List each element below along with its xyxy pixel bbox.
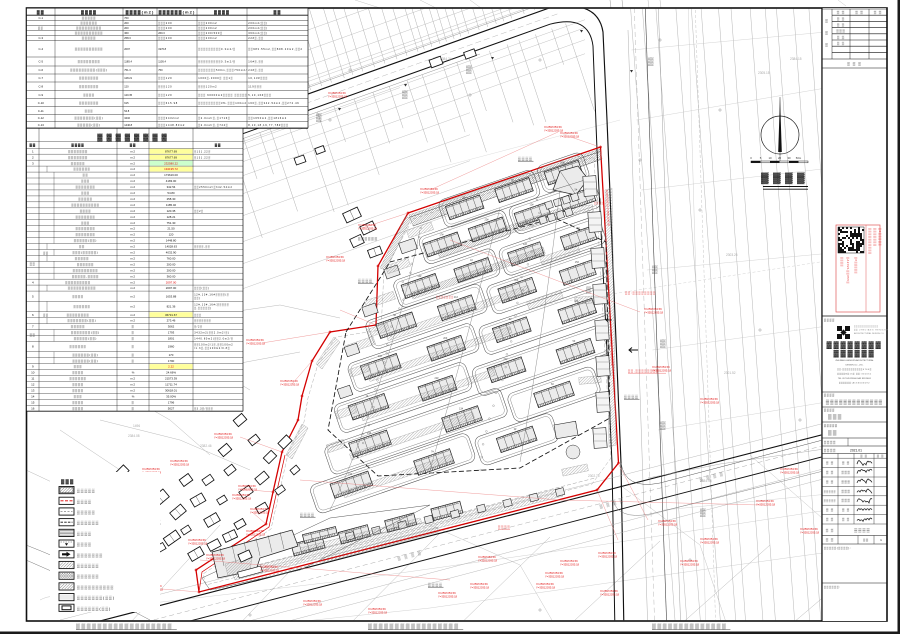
svg-text:%: % [132, 395, 135, 399]
svg-text:1960: 1960 [168, 345, 175, 349]
svg-text:▒ ▒ ▒: ▒ ▒ ▒ [847, 62, 862, 66]
svg-text:▒▒▒▒▒(▒▒): ▒▒▒▒▒(▒▒) [74, 239, 97, 243]
svg-text:▒▒▒: ▒▒▒ [81, 191, 90, 195]
svg-text:▒▒▒▒▒▒▒▒▒▒▒▒▒▒: ▒▒▒▒▒▒▒▒▒▒▒▒▒▒ [652, 623, 727, 630]
svg-text:1: 1 [880, 538, 882, 542]
svg-text:200m2(▒▒): 200m2(▒▒) [248, 21, 268, 25]
svg-text:▒▒▒▒: ▒▒▒▒ [72, 383, 83, 387]
svg-text:m2: m2 [130, 383, 136, 387]
svg-text:Y=35512035.18: Y=35512035.18 [545, 574, 565, 578]
svg-text:Y=35512035.18: Y=35512035.18 [756, 502, 776, 506]
svg-text:▒▒▒200m2: ▒▒▒200m2 [198, 36, 217, 40]
svg-text:2097.00: 2097.00 [166, 280, 177, 284]
svg-text:26#: 26# [514, 279, 519, 282]
svg-text:760.00: 760.00 [167, 257, 176, 261]
svg-text:273.46: 273.46 [167, 319, 176, 323]
svg-text:▒▒▒▒▒,▒▒▒▒: ▒▒▒▒▒,▒▒▒▒ [72, 274, 99, 278]
svg-text:16#▒,▒▒: 16#▒,▒▒ [248, 60, 263, 64]
svg-text:1976.8: 1976.8 [158, 47, 166, 51]
svg-text:▒ ▒: ▒ ▒ [837, 35, 845, 39]
svg-text:m2: m2 [130, 377, 136, 381]
svg-text:▒: ▒ [402, 90, 410, 99]
svg-text:m2: m2 [130, 185, 136, 189]
svg-text:▒▒▒200: ▒▒▒200 [158, 36, 172, 40]
svg-text:21.50: 21.50 [167, 227, 175, 231]
svg-text:▒▒▒120: ▒▒▒120 [158, 85, 172, 89]
svg-text:▒: ▒ [648, 57, 656, 66]
svg-text:1496: 1496 [133, 424, 140, 428]
svg-text:▒▒▒: ▒▒▒ [81, 221, 90, 225]
svg-text:▒▒▒▒▒▒▒▒▒0.3m2/▒: ▒▒▒▒▒▒▒▒▒0.3m2/▒ [198, 60, 236, 64]
svg-text:▒▒2550m2/▒342.54m2: ▒▒2550m2/▒342.54m2 [194, 185, 232, 189]
svg-text:360: 360 [124, 31, 129, 35]
svg-text:▒: ▒ [132, 353, 135, 357]
svg-text:▒▒▒200m2: ▒▒▒200m2 [198, 21, 217, 25]
svg-text:▒ ▒: ▒ ▒ [842, 508, 850, 512]
svg-text:751.3: 751.3 [124, 68, 131, 72]
svg-text:▒▒▒▒: ▒▒▒▒ [77, 542, 92, 547]
svg-text:▒▒1650m2,▒▒1816m2: ▒▒1650m2,▒▒1816m2 [248, 116, 287, 120]
svg-text:▒▒▒(▒▒▒▒▒): ▒▒▒(▒▒▒▒▒) [72, 251, 98, 255]
svg-text:50m: 50m [796, 156, 802, 160]
svg-text:Y=35512035.18: Y=35512035.18 [700, 540, 720, 544]
svg-text:▒▒▒: ▒▒▒ [841, 499, 850, 503]
svg-text:87677.69: 87677.69 [165, 155, 177, 159]
svg-text:160▒,▒▒342.54m2,▒▒272.46: 160▒,▒▒342.54m2,▒▒272.46 [248, 101, 299, 105]
svg-text:▒3.3▒/▒▒▒: ▒3.3▒/▒▒▒ [194, 406, 213, 410]
svg-text:13: 13 [31, 389, 35, 393]
svg-text:▒▒▒▒▒▒▒▒▒▒: ▒▒▒▒▒▒▒▒▒▒ [77, 584, 114, 589]
svg-text:▒ ▒: ▒ ▒ [826, 508, 834, 512]
svg-text:%: % [132, 371, 135, 375]
svg-text:C-10: C-10 [38, 101, 45, 105]
svg-text:▒ ▒: ▒ ▒ [826, 518, 834, 522]
svg-text:▒▒▒120m2: ▒▒▒120m2 [198, 85, 217, 89]
svg-text:▒▒▒200: ▒▒▒200 [158, 21, 172, 25]
svg-text:C-12: C-12 [38, 116, 45, 120]
svg-text:▒▒▒▒: ▒▒▒▒ [300, 512, 315, 517]
svg-text:Y=35512035.18: Y=35512035.18 [780, 470, 800, 474]
svg-text:▒▒▒▒▒▒▒: ▒▒▒▒▒▒▒ [436, 295, 454, 299]
svg-text:200m2(▒▒): 200m2(▒▒) [248, 26, 268, 30]
svg-text:m2: m2 [130, 294, 136, 298]
svg-text:▒▒▒: ▒▒▒ [841, 471, 850, 475]
svg-text:Y=35512035.18: Y=35512035.18 [188, 541, 208, 545]
svg-text:▒▒▒▒▒▒▒▒▒3%.▒▒▒100m2: ▒▒▒▒▒▒▒▒▒3%.▒▒▒100m2 [198, 101, 246, 105]
svg-text:170: 170 [169, 353, 174, 357]
svg-text:▒▒▒▒▒▒▒: ▒▒▒▒▒▒▒ [76, 233, 96, 237]
svg-text:m2: m2 [130, 257, 136, 261]
svg-text:▒▒▒▒: ▒▒▒▒ [824, 441, 836, 445]
svg-text:▒▒▒: ▒▒▒ [194, 313, 201, 317]
svg-text:2382.46: 2382.46 [200, 444, 212, 448]
svg-text:▒▒▒▒▒▒▒▒▒▒▒▒▒▒▒▒▒: ▒▒▒▒▒▒▒▒▒▒▒▒▒▒▒▒▒ [368, 623, 460, 630]
svg-text:m2: m2 [130, 203, 136, 207]
svg-text:▒▒▒▒▒▒(▒▒): ▒▒▒▒▒▒(▒▒) [77, 606, 111, 611]
svg-text:▒▒▒▒▒▒▒▒▒▒▒▒▒▒▒▒▒▒: ▒▒▒▒▒▒▒▒▒▒▒▒▒▒▒▒▒▒ [76, 623, 173, 630]
svg-text:120.35: 120.35 [167, 209, 176, 213]
svg-text:▒▒▒: ▒▒▒ [74, 395, 83, 399]
svg-text:▒▒▒: ▒▒▒ [836, 29, 845, 33]
svg-text:▒: ▒ [132, 337, 135, 341]
svg-text:▒: ▒ [652, 265, 660, 274]
svg-text:Y=35512035.18: Y=35512035.18 [206, 556, 226, 560]
svg-text:2384.15: 2384.15 [790, 57, 802, 61]
svg-text:▒▒▒▒▒: ▒▒▒▒▒ [824, 499, 836, 503]
svg-text:▒▒▒▒▒▒▒500m,▒▒▒750m2/: ▒▒▒▒▒▒▒500m,▒▒▒750m2/ [198, 68, 247, 72]
svg-text:▒▒▒▒▒▒: ▒▒▒▒▒▒ [77, 574, 99, 579]
svg-text:▒▒▒▒: ▒▒▒▒ [824, 449, 836, 453]
svg-text:▒▒▒▒▒▒: ▒▒▒▒▒▒ [77, 262, 94, 266]
svg-text:C-9: C-9 [39, 93, 44, 97]
svg-text:▒▒:▒▒▒▒▒▒▒▒▒▒4760▒: ▒▒:▒▒▒▒▒▒▒▒▒▒4760▒ [837, 368, 872, 371]
svg-text:▒▒▒▒▒▒▒▒▒▒▒▒: ▒▒▒▒▒▒▒▒▒▒▒▒ [854, 325, 879, 328]
svg-text:▒ ▒: ▒ ▒ [826, 461, 834, 465]
svg-text:▒: ▒ [132, 406, 135, 410]
svg-text:54.80: 54.80 [167, 191, 175, 195]
svg-text:m2: m2 [130, 262, 136, 266]
svg-text:1448.80: 1448.80 [166, 239, 177, 243]
svg-text:m2: m2 [130, 215, 136, 219]
svg-text:8,10,18,19,77,78#▒▒▒: 8,10,18,19,77,78#▒▒▒ [248, 123, 288, 127]
svg-text:▒▒▒120: ▒▒▒120 [158, 76, 172, 80]
svg-text:▒▒: ▒▒ [83, 173, 89, 177]
svg-text:12: 12 [31, 383, 35, 387]
svg-text:ARCHITECTURAL DESIGN CO.: ARCHITECTURAL DESIGN CO. [854, 332, 885, 335]
svg-text:120.35: 120.35 [124, 93, 132, 97]
svg-text:22#: 22# [560, 162, 565, 165]
svg-text:▒▒▒▒: ▒▒▒▒ [72, 389, 83, 393]
svg-text:194195.72: 194195.72 [164, 167, 178, 171]
svg-text:Y=35512035.18: Y=35512035.18 [246, 532, 266, 536]
svg-text:1185.40: 1185.40 [166, 203, 177, 207]
svg-text:▒▒▒▒▒▒▒: ▒▒▒▒▒▒▒ [873, 228, 877, 247]
svg-text:▒▒▒▒,▒▒: ▒▒▒▒,▒▒ [194, 245, 210, 249]
svg-text:▒▒▒▒▒▒▒▒▒: ▒▒▒▒▒▒▒▒▒ [65, 280, 91, 284]
svg-text:▒▒▒▒▒▒▒▒▒0.3m2/▒: ▒▒▒▒▒▒▒▒▒0.3m2/▒ [198, 47, 236, 51]
svg-text:3062: 3062 [168, 325, 175, 329]
svg-text:128.21: 128.21 [124, 76, 132, 80]
svg-text:3432m2(▒▒2.0m2/▒): 3432m2(▒▒2.0m2/▒) [194, 331, 229, 335]
svg-text:120: 120 [124, 85, 129, 89]
svg-text:▒▒▒▒▒: ▒▒▒▒▒ [71, 325, 85, 329]
svg-text:10: 10 [31, 371, 35, 375]
svg-text:C-5: C-5 [39, 60, 44, 64]
svg-text:15#: 15# [367, 432, 372, 435]
svg-text:12#: 12# [523, 243, 528, 246]
svg-text:▒▒▒▒▒▒:A133005092: ▒▒▒▒▒▒:A133005092 [839, 382, 870, 385]
svg-text:5,10,16#▒▒▒: 5,10,16#▒▒▒ [248, 93, 271, 97]
svg-text:Y=35512035.18: Y=35512035.18 [700, 400, 720, 404]
svg-text:▒▒▒▒▒▒▒: ▒▒▒▒▒▒▒ [77, 552, 103, 557]
svg-text:751.30: 751.30 [167, 221, 176, 225]
svg-text:▒▒▒▒▒▒▒: ▒▒▒▒▒▒▒ [79, 76, 99, 80]
svg-text:Y=35512035.18: Y=35512035.18 [478, 558, 498, 562]
svg-text:▒▒▒▒▒▒: ▒▒▒▒▒▒ [70, 377, 87, 381]
svg-text:▒▒▒▒▒: ▒▒▒▒▒ [82, 16, 96, 20]
svg-text:5027: 5027 [168, 406, 175, 410]
svg-text:Y=35512035.18: Y=35512035.18 [420, 190, 440, 194]
svg-text:/1.3▒,▒▒100m2/0.8▒: /1.3▒,▒▒100m2/0.8▒ [194, 346, 230, 350]
svg-text:260.3: 260.3 [158, 31, 165, 35]
svg-text:2.22: 2.22 [168, 365, 174, 369]
svg-text:15: 15 [31, 400, 35, 404]
svg-text:C-7: C-7 [39, 76, 44, 80]
svg-text:▒ ▒: ▒ ▒ [874, 11, 882, 15]
svg-text:200.00: 200.00 [167, 262, 176, 266]
svg-text:▒▒▒▒▒▒▒: ▒▒▒▒▒▒▒ [76, 215, 96, 219]
svg-text:▒131.22▒: ▒131.22▒ [194, 155, 211, 159]
svg-text:258.30: 258.30 [167, 197, 176, 201]
svg-text:▒▒2▒: ▒▒2▒ [194, 209, 203, 213]
svg-text:Y=35512035.18: Y=35512035.18 [470, 585, 490, 589]
svg-text:m2: m2 [130, 191, 136, 195]
svg-text:▒▒▒200/500▒: ▒▒▒200/500▒ [198, 31, 222, 35]
svg-text:▒▒▒▒▒▒▒▒▒▒: ▒▒▒▒▒▒▒▒▒▒ [75, 31, 103, 35]
svg-text:20: 20 [778, 156, 782, 160]
svg-text:▒▒: ▒▒ [38, 26, 43, 30]
svg-text:▒: ▒ [825, 43, 829, 47]
svg-text:▒▒▒▒: ▒▒▒▒ [77, 531, 92, 536]
svg-text:▒▒ ZHEJIANG HENGXIN: ▒▒ ZHEJIANG HENGXIN [854, 329, 889, 332]
svg-text:119▒▒▒: 119▒▒▒ [248, 85, 262, 89]
svg-text:17#: 17# [440, 234, 445, 237]
svg-text:▒▒: ▒▒ [863, 538, 869, 542]
svg-text:▒▒▒▒▒▒▒▒: ▒▒▒▒▒▒▒▒ [67, 313, 90, 317]
svg-text:20#: 20# [504, 358, 509, 361]
svg-text:m2: m2 [130, 274, 136, 278]
svg-text:▒▒▒▒▒: ▒▒▒▒▒ [824, 489, 836, 493]
svg-text:1653.88: 1653.88 [166, 294, 177, 298]
svg-text:▒▒: ▒▒ [30, 262, 36, 266]
svg-text:▓▓: ▓▓ [130, 143, 137, 147]
svg-text:▒▒▒▒▒▒▒▒▒▒: ▒▒▒▒▒▒▒▒▒▒ [868, 228, 872, 255]
svg-text:▓▓▓▓▓▓▓▓: ▓▓▓▓▓▓▓▓ [827, 341, 883, 349]
svg-text:Y=35512035.18: Y=35512035.18 [238, 487, 258, 491]
svg-text:▒▒▒▒▒▒: ▒▒▒▒▒▒ [77, 563, 99, 568]
svg-text:▒▒▒▒▒(▒▒): ▒▒▒▒▒(▒▒) [74, 337, 97, 341]
svg-text:24#▒,▒▒: 24#▒,▒▒ [248, 68, 263, 72]
svg-text:▒ ▒: ▒ ▒ [837, 23, 845, 27]
svg-text:11711.74: 11711.74 [165, 383, 177, 387]
svg-text:▒▒▒▒▒▒: ▒▒▒▒▒▒ [77, 520, 99, 525]
svg-text:35.00%: 35.00% [166, 395, 176, 399]
svg-text:▒,▒▒▒▒▒): ▒,▒▒▒▒▒) [194, 306, 212, 310]
svg-text:m2: m2 [130, 251, 136, 255]
svg-text:▒▒▒3432m2: ▒▒▒3432m2 [158, 116, 179, 120]
svg-text:15#: 15# [575, 261, 580, 264]
svg-text:C-13: C-13 [38, 123, 45, 127]
svg-text:▒ ▒: ▒ ▒ [877, 454, 884, 458]
svg-text:▒▒▒▒▒▒▒▒▒▒: ▒▒▒▒▒▒▒▒▒▒ [68, 286, 96, 290]
svg-text:▒: ▒ [825, 31, 829, 35]
svg-text:▒▒▒: ▒▒▒ [81, 179, 90, 183]
svg-text:Y=35512035.18: Y=35512035.18 [680, 562, 700, 566]
svg-text:173616.00: 173616.00 [164, 173, 178, 177]
svg-text:▒▒▒▒▒▒▒: ▒▒▒▒▒▒▒ [76, 185, 96, 189]
svg-text:▒▒: ▒▒ [43, 313, 48, 317]
svg-text:▒ ▒: ▒ ▒ [855, 11, 863, 15]
svg-text:▒ ▒: ▒ ▒ [842, 461, 850, 465]
svg-text:12#,13#,16#(▒▒▒▒▒: 12#,13#,16#(▒▒▒▒▒ [194, 303, 229, 307]
svg-text:▒▒▒▒: ▒▒▒▒ [594, 201, 604, 205]
svg-text:200.00: 200.00 [167, 268, 176, 272]
svg-text:▒▒: ▒▒ [828, 430, 838, 437]
svg-text:▒▒▒▒: ▒▒▒▒ [854, 528, 870, 533]
svg-text:▒: ▒ [132, 400, 135, 404]
svg-text:▒2.0m2/▒,▒1716▒: ▒2.0m2/▒,▒1716▒ [198, 116, 230, 120]
svg-text:22#: 22# [485, 219, 490, 222]
svg-text:▒▒▒▒▒▒: ▒▒▒▒▒▒ [81, 21, 98, 25]
svg-text:1801: 1801 [168, 337, 175, 341]
svg-text:▒▒▒▒: ▒▒▒▒ [518, 156, 533, 161]
svg-text:▒▒▒▒▒▒(▒▒): ▒▒▒▒▒▒(▒▒) [72, 353, 98, 357]
svg-text:16#: 16# [462, 196, 467, 199]
svg-text:200: 200 [124, 21, 129, 25]
svg-text:▒▒▒▒: ▒▒▒▒ [77, 499, 92, 504]
svg-text:Y=35512035.18: Y=35512035.18 [560, 562, 580, 566]
svg-text:750: 750 [158, 68, 163, 72]
svg-text:1440.80m2(▒▒2.0m2/▒: 1440.80m2(▒▒2.0m2/▒ [194, 337, 233, 341]
svg-text:16#: 16# [576, 227, 581, 230]
svg-text:▒▒▒▒▒▒:: ▒▒▒▒▒▒: [824, 585, 841, 589]
svg-text:▒ ▒: ▒ ▒ [826, 529, 834, 533]
svg-text:▒▒▒▒▒(▒▒▒▒):: ▒▒▒▒▒(▒▒▒▒): [824, 546, 851, 550]
svg-text:▒▒▒▒▒▒▒▒▒(▒▒▒): ▒▒▒▒▒▒▒▒▒(▒▒▒) [70, 68, 107, 72]
svg-text:▒ ▒: ▒ ▒ [837, 17, 845, 21]
svg-text:▒▒▒▒▒: ▒▒▒▒▒ [77, 510, 96, 515]
svg-text:Y=35512035.18: Y=35512035.18 [644, 310, 664, 314]
svg-text:Y=35512035.18: Y=35512035.18 [800, 530, 820, 534]
svg-text:m2: m2 [130, 173, 136, 177]
svg-text:▒▒▒▒▒▒▒: ▒▒▒▒▒▒▒ [68, 149, 88, 153]
svg-text:▒▒▒▒▒▒▒▒: ▒▒▒▒▒▒▒▒ [78, 60, 101, 64]
svg-text:▒▒▒▒▒▒▒: ▒▒▒▒▒▒▒ [194, 319, 211, 323]
svg-text:▓▓▓▓: ▓▓▓▓ [71, 143, 84, 147]
svg-text:▒▒▒▒: ▒▒▒▒ [824, 318, 835, 322]
svg-text:m2: m2 [130, 227, 136, 231]
svg-text:C-6: C-6 [39, 68, 44, 72]
svg-text:Y=35512035.18: Y=35512035.18 [598, 554, 618, 558]
svg-text:▒▒▒▒: ▒▒▒▒ [824, 408, 835, 412]
svg-text:1000▒-3000▒ ▒▒1▒: 1000▒-3000▒ ▒▒1▒ [198, 76, 233, 80]
svg-text:▒: ▒ [132, 331, 135, 335]
svg-text:Y=35512035.18: Y=35512035.18 [358, 226, 378, 230]
svg-text:2097: 2097 [124, 47, 130, 51]
svg-text:▒▒▒▒▒▒▒▒▒▒: ▒▒▒▒▒▒▒▒▒▒ [71, 203, 99, 207]
svg-text:m2: m2 [130, 239, 136, 243]
svg-text:▒▒▒: ▒▒▒ [841, 489, 850, 493]
svg-text:1790: 1790 [168, 359, 175, 363]
svg-text:21#: 21# [454, 296, 459, 299]
svg-text:m2: m2 [130, 179, 136, 183]
svg-text:DESIGN CO., LTD.: DESIGN CO., LTD. [846, 365, 864, 367]
svg-text:▒▒▒▒▒▒: ▒▒▒▒▒▒ [70, 345, 87, 349]
svg-text:232580.22: 232580.22 [164, 161, 178, 165]
svg-text:2384.08: 2384.08 [128, 434, 140, 438]
svg-text:C-8: C-8 [39, 85, 44, 89]
svg-text:11: 11 [31, 377, 34, 381]
svg-text:ZHEJIANG HENGXIN ARCHITECTURAL: ZHEJIANG HENGXIN ARCHITECTURAL [835, 359, 874, 362]
svg-text:▒▒▒▒: ▒▒▒▒ [72, 406, 83, 410]
svg-text:1440.8: 1440.8 [124, 123, 132, 127]
svg-text:615: 615 [124, 101, 129, 105]
svg-text:m2: m2 [130, 280, 136, 284]
svg-text:13#: 13# [417, 275, 422, 278]
svg-text:▒▒▒: ▒▒▒ [841, 480, 850, 484]
svg-text:m2: m2 [130, 245, 136, 249]
svg-text:▒▒▒▒▒▒▒: ▒▒▒▒▒▒▒ [76, 227, 96, 231]
svg-text:10,13#▒▒▒: 10,13#▒▒▒ [248, 76, 268, 80]
svg-text:▒▒▒▒▒▒: ▒▒▒▒▒▒ [74, 167, 91, 171]
svg-text:1105.4: 1105.4 [158, 60, 166, 64]
svg-text:Y=35512035.18: Y=35512035.18 [328, 94, 348, 98]
svg-text:2305.15: 2305.15 [758, 71, 770, 75]
svg-text:▒▒▒120: ▒▒▒120 [158, 93, 172, 97]
svg-text:20#: 20# [443, 337, 448, 340]
svg-text:▒▒▒▒▒: ▒▒▒▒▒ [77, 488, 96, 493]
svg-text:▒▒): ▒▒) [194, 296, 200, 300]
svg-text:▒: ▒ [660, 421, 668, 430]
svg-text:30: 30 [787, 156, 791, 160]
svg-text:Y=35512035.18: Y=35512035.18 [280, 382, 300, 386]
svg-text:Y=35512035.18: Y=35512035.18 [250, 510, 270, 514]
svg-text:▒▒983.55m2,▒▒898.20m2,▒▒2: ▒▒983.55m2,▒▒898.20m2,▒▒2 [248, 47, 302, 51]
svg-text:▒▒▒▒: ▒▒▒▒ [498, 525, 510, 529]
svg-text:3432: 3432 [124, 116, 130, 120]
svg-text:▒▒▒▒▒▒(▒▒): ▒▒▒▒▒▒(▒▒) [72, 359, 98, 363]
svg-text:Y=35512035.18: Y=35512035.18 [170, 462, 190, 466]
svg-text:342.54: 342.54 [167, 185, 176, 189]
svg-text:▒▒▒▒: ▒▒▒▒ [358, 278, 373, 283]
svg-text:▒▒▒▒▒: ▒▒▒▒▒ [82, 36, 96, 40]
svg-text:▒▒▒▒▒▒: ▒▒▒▒▒▒ [74, 305, 91, 309]
svg-text:12#: 12# [459, 408, 464, 411]
svg-text:▒▒▒▒: ▒▒▒▒ [80, 209, 91, 213]
svg-text:▒▒:▒▒▒▒▒▒▒▒: ▒▒:▒▒▒▒▒▒▒▒ [625, 291, 656, 295]
svg-text:Y=35512035.18: Y=35512035.18 [658, 522, 678, 526]
svg-text:▒▒▒▒: ▒▒▒▒ [428, 582, 443, 587]
svg-text:821.36: 821.36 [167, 305, 176, 309]
svg-text:▒ ▒: ▒ ▒ [837, 11, 845, 15]
svg-text:▒▒▒▒▒▒: ▒▒▒▒▒▒ [358, 237, 378, 241]
svg-text:Y=35512035.18: Y=35512035.18 [438, 594, 458, 598]
svg-text:▒▒▒▒: ▒▒▒▒ [83, 93, 94, 97]
svg-text:▓▓▓▓▓▓: ▓▓▓▓▓▓ [834, 350, 876, 358]
svg-text:360.00: 360.00 [167, 274, 176, 278]
svg-text:m2: m2 [130, 233, 136, 237]
svg-text:▒▒▒▒: ▒▒▒▒ [624, 394, 639, 399]
svg-text:▒▒▒▒▒▒▒▒▒▒: ▒▒▒▒▒▒▒▒▒▒ [75, 47, 103, 51]
svg-text:m2: m2 [130, 161, 136, 165]
svg-text:▒▒▒▒▒▒▒▒▒: ▒▒▒▒▒▒▒▒▒ [76, 26, 102, 30]
svg-text:m2: m2 [130, 209, 136, 213]
svg-text:Y=35512035.18: Y=35512035.18 [536, 585, 556, 589]
svg-text:23#: 23# [378, 355, 383, 358]
svg-text:4183.00: 4183.00 [166, 179, 177, 183]
svg-text:10: 10 [768, 156, 772, 160]
svg-text:Y=35512035.18: Y=35512035.18 [560, 134, 580, 138]
svg-text:▒▒▒▒▒▒▒▒▒: ▒▒▒▒▒▒▒▒▒ [73, 268, 99, 272]
svg-text:C-4: C-4 [39, 47, 44, 51]
svg-text:▒: ▒ [132, 359, 135, 363]
svg-text:▒ ▒: ▒ ▒ [826, 471, 834, 475]
svg-text:▒▒: ▒▒ [43, 251, 48, 255]
svg-text:▒▒▒▒B▒15▒ ▒▒:310051: ▒▒▒▒B▒15▒ ▒▒:310051 [837, 373, 872, 376]
svg-text:m2: m2 [130, 268, 136, 272]
svg-text:2303.26: 2303.26 [726, 253, 738, 257]
svg-text:2097.00: 2097.00 [166, 286, 177, 290]
